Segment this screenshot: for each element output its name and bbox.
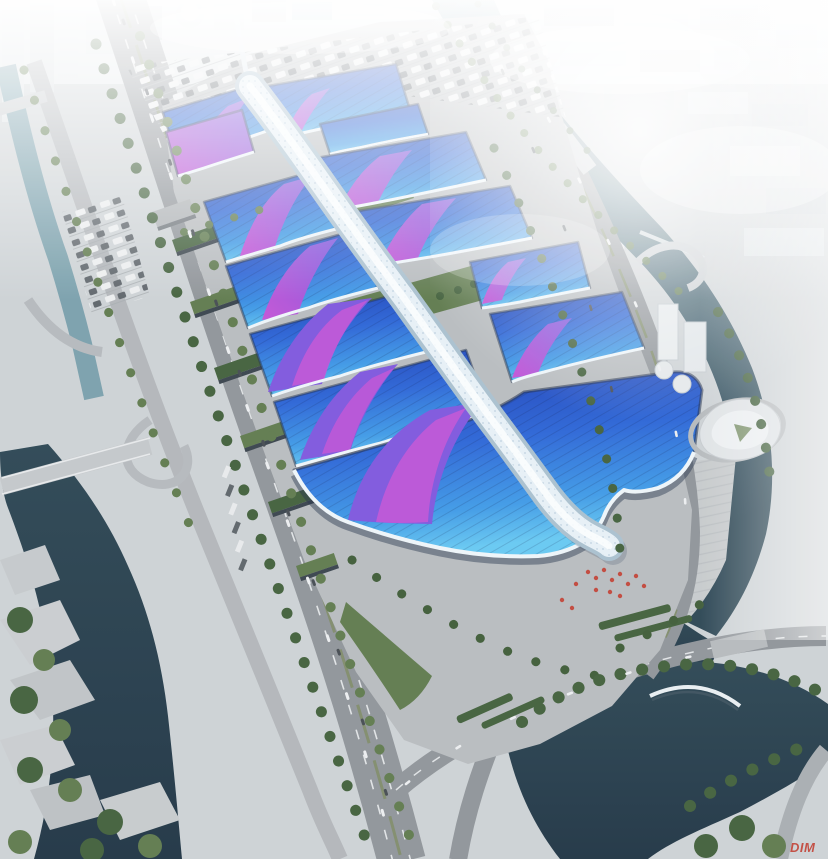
scene-canvas: DIM	[0, 0, 828, 859]
atmospheric-haze	[0, 0, 828, 859]
global-veil	[0, 0, 828, 859]
aerial-rendering-exhibition-center: DIM	[0, 0, 828, 859]
watermark-logo: DIM	[790, 840, 816, 855]
